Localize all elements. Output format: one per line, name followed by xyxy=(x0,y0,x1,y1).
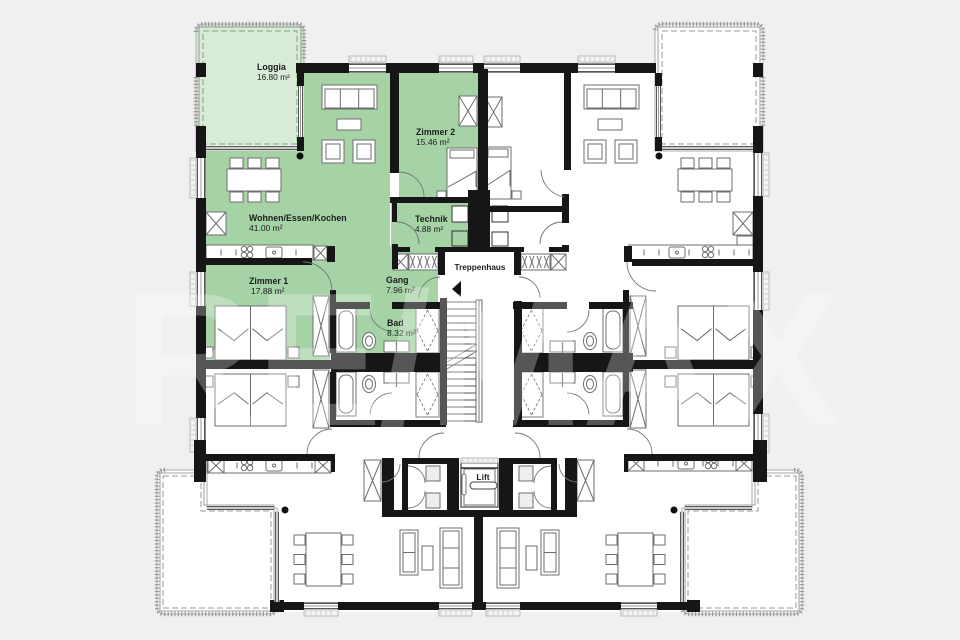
svg-text:41.00 m²: 41.00 m² xyxy=(249,223,283,233)
svg-text:Loggia: Loggia xyxy=(257,62,286,72)
svg-text:Lift: Lift xyxy=(476,472,489,482)
svg-text:Zimmer 2: Zimmer 2 xyxy=(416,127,455,137)
svg-text:Wohnen/Essen/Kochen: Wohnen/Essen/Kochen xyxy=(249,213,347,223)
svg-text:15.46 m²: 15.46 m² xyxy=(416,137,450,147)
svg-text:16.80 m²: 16.80 m² xyxy=(257,72,290,82)
svg-text:Technik: Technik xyxy=(415,214,448,224)
svg-text:RE/MAX: RE/MAX xyxy=(123,254,841,466)
svg-text:4.88 m²: 4.88 m² xyxy=(415,224,443,234)
